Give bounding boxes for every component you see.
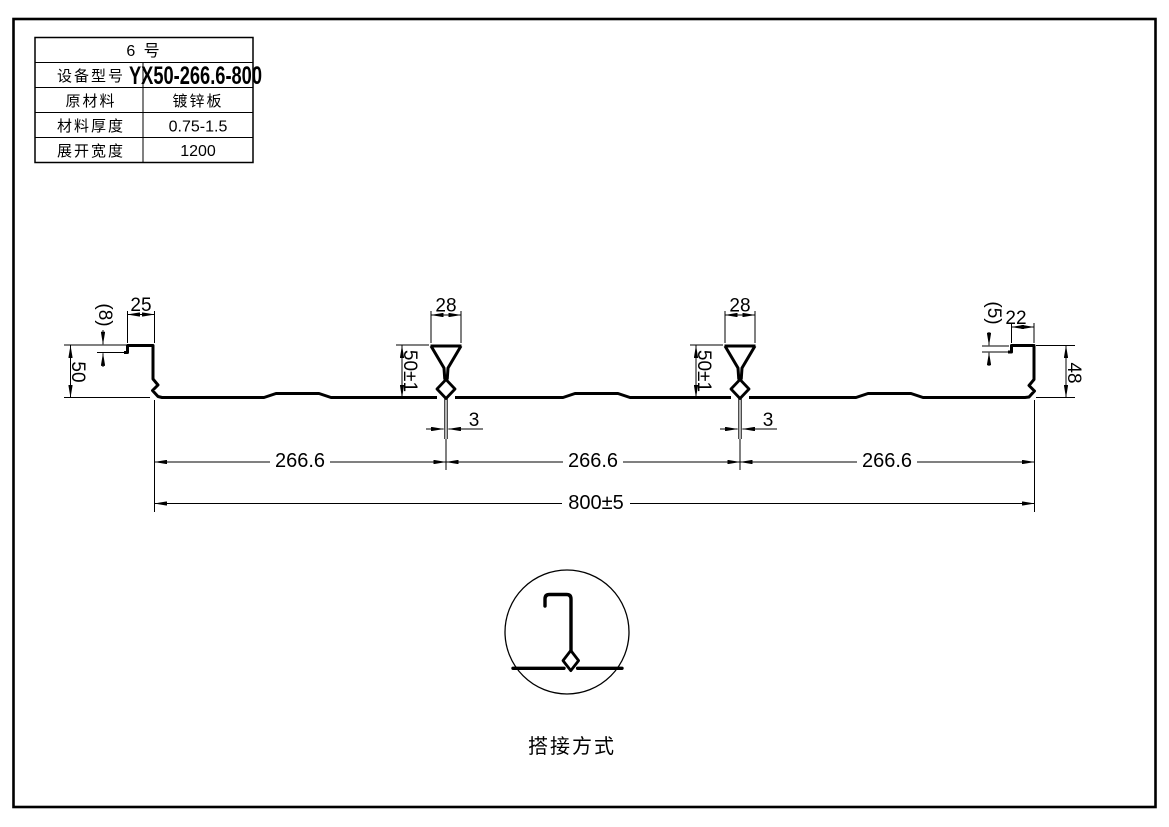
dim-rib2-top-width: 28 — [729, 296, 750, 317]
lap-joint-detail: 搭接方式 — [505, 570, 629, 758]
detail-circle — [505, 570, 629, 694]
dim-rib1-top-width: 28 — [435, 296, 456, 317]
spec-value-coil-width: 1200 — [180, 143, 216, 160]
dim-right-lip-height: (5) — [983, 301, 1004, 324]
spec-value-model: YX50-266.6-800 — [129, 62, 262, 90]
spec-table: 6 号 设备型号 YX50-266.6-800 原材料 镀锌板 材料厚度 0.7… — [35, 38, 262, 163]
dim-right-web-height: 48 — [1063, 362, 1084, 383]
spec-label-model: 设备型号 — [57, 68, 125, 85]
profile-left-segment — [124, 346, 437, 398]
panel-profile — [124, 346, 1035, 440]
dim-left-flange-width: 25 — [130, 295, 151, 316]
profile-rib2-seam-diamond — [731, 380, 749, 399]
dim-right-flange-width: 22 — [1005, 308, 1026, 329]
detail-caption: 搭接方式 — [528, 735, 616, 758]
dim-module-width-2: 266.6 — [568, 450, 618, 472]
dim-module-width-3: 266.6 — [862, 450, 912, 472]
profile-right-segment — [749, 346, 1035, 398]
spec-value-thickness: 0.75-1.5 — [169, 119, 228, 136]
dim-module-width-1: 266.6 — [275, 450, 325, 472]
dim-rib2-height: 50±1 — [693, 350, 714, 392]
profile-rib1-seam-diamond — [437, 380, 455, 399]
spec-label-thickness: 材料厚度 — [57, 118, 125, 135]
dim-left-web-height: 50 — [67, 361, 88, 382]
spec-value-material: 镀锌板 — [172, 92, 223, 110]
dim-left-lip-height: (8) — [94, 303, 115, 326]
profile-rib2-right-side — [741, 346, 755, 380]
drawing-canvas: 6 号 设备型号 YX50-266.6-800 原材料 镀锌板 材料厚度 0.7… — [0, 0, 1169, 827]
detail-hook-profile — [545, 595, 571, 651]
dim-rib2-seam-gap: 3 — [763, 410, 774, 431]
profile-middle-pan — [455, 394, 731, 398]
dim-rib1-seam-gap: 3 — [469, 410, 480, 431]
spec-label-coil-width: 展开宽度 — [57, 143, 125, 160]
dim-rib1-height: 50±1 — [399, 350, 420, 392]
spec-table-title: 6 号 — [126, 42, 161, 60]
profile-rib1-right-side — [447, 346, 461, 380]
spec-label-material: 原材料 — [65, 93, 116, 110]
dim-group-overall: 266.6 266.6 266.6 800±5 — [155, 400, 1035, 514]
profile-rib2-left-side — [725, 346, 739, 380]
dim-overall-width: 800±5 — [568, 492, 623, 514]
drawing-sheet: 6 号 设备型号 YX50-266.6-800 原材料 镀锌板 材料厚度 0.7… — [0, 0, 1169, 827]
profile-rib1-left-side — [431, 346, 445, 380]
